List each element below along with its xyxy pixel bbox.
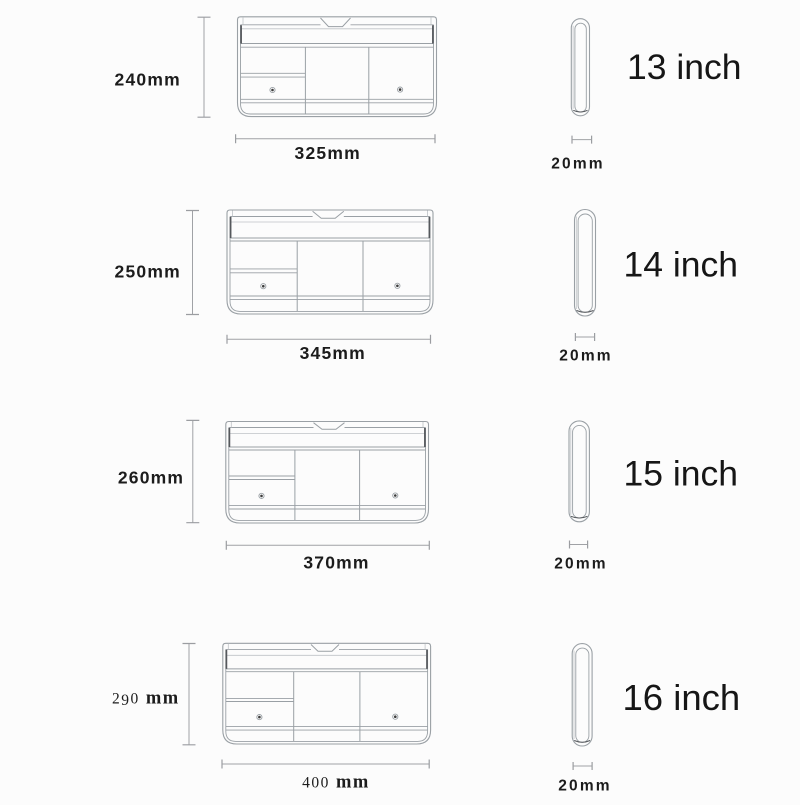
svg-text:400 mm: 400 mm — [302, 773, 370, 793]
svg-text:20mm: 20mm — [559, 348, 613, 365]
svg-text:20mm: 20mm — [554, 555, 608, 572]
svg-text:240mm: 240mm — [115, 69, 181, 89]
svg-text:260mm: 260mm — [118, 467, 184, 487]
svg-text:13 inch: 13 inch — [627, 47, 741, 87]
svg-text:325mm: 325mm — [295, 143, 361, 163]
svg-text:250mm: 250mm — [115, 262, 181, 282]
svg-text:290 mm: 290 mm — [112, 689, 180, 710]
svg-text:370mm: 370mm — [303, 552, 369, 572]
svg-text:345mm: 345mm — [300, 343, 366, 363]
svg-text:15 inch: 15 inch — [624, 453, 738, 493]
svg-text:20mm: 20mm — [558, 778, 612, 795]
svg-text:16 inch: 16 inch — [623, 677, 741, 718]
svg-text:14 inch: 14 inch — [624, 244, 738, 284]
svg-text:20mm: 20mm — [551, 155, 605, 172]
